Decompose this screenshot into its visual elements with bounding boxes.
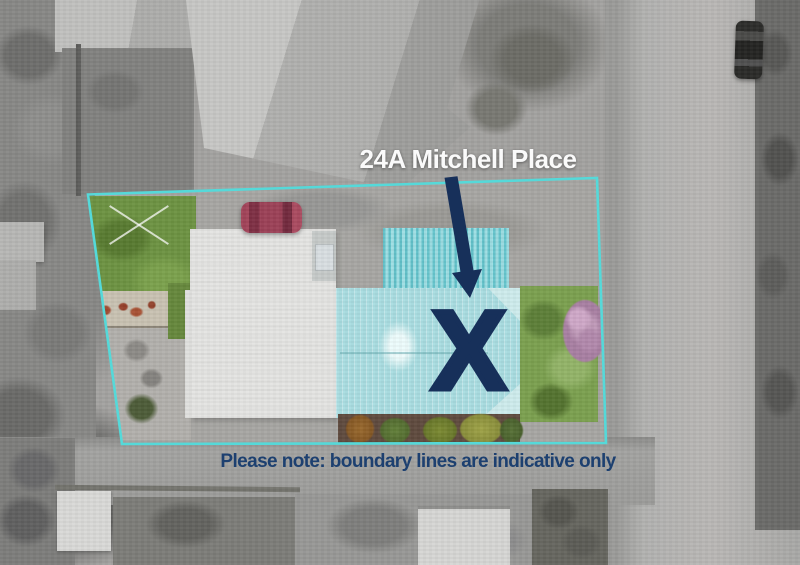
x-marker: X	[410, 289, 528, 415]
property-boundary-line	[88, 178, 606, 444]
boundary-disclaimer-note: Please note: boundary lines are indicati…	[118, 451, 718, 473]
annotation-overlay	[0, 0, 800, 565]
property-address-title: 24A Mitchell Place	[318, 144, 618, 175]
down-arrow-icon	[445, 176, 483, 298]
aerial-property-photo: X 24A Mitchell Place Please note: bounda…	[0, 0, 800, 565]
